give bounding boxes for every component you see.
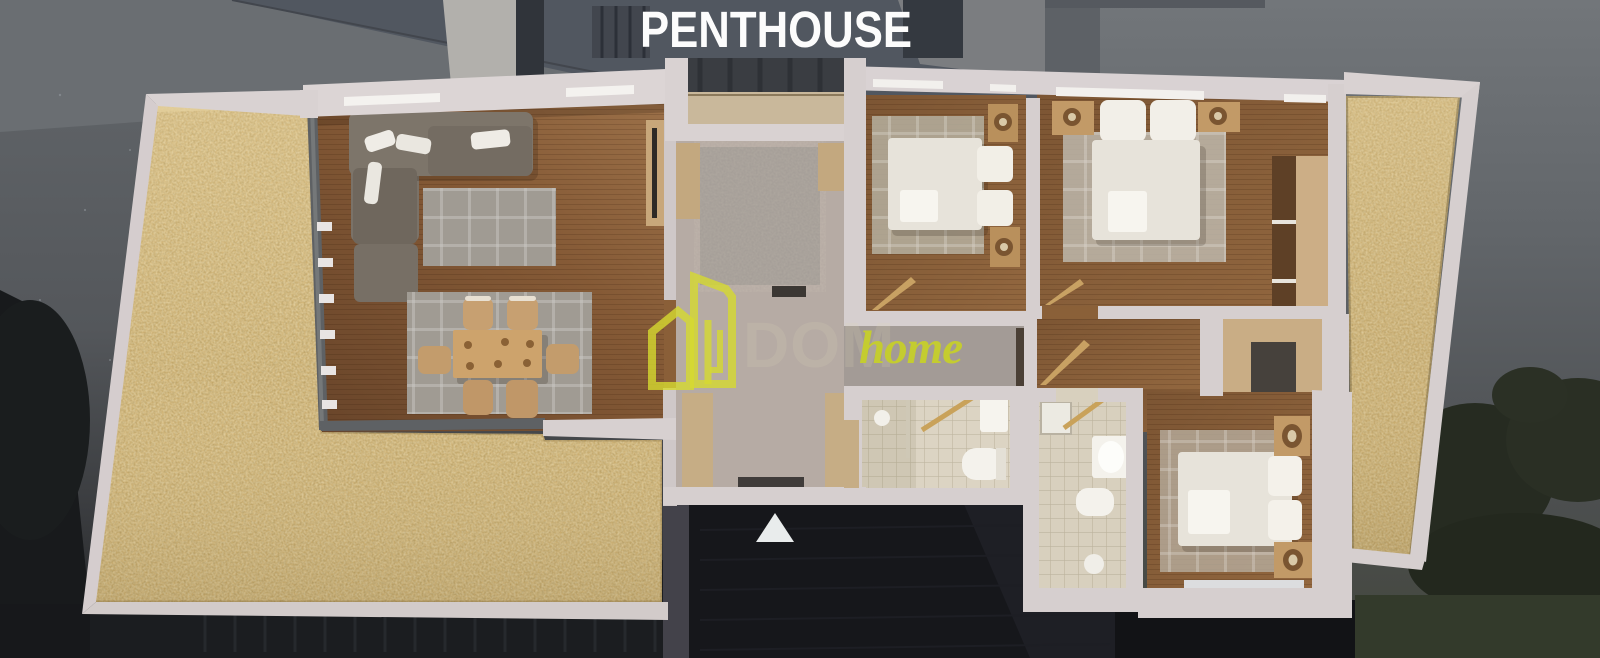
svg-text:PENTHOUSE: PENTHOUSE [640,1,912,58]
svg-text:home: home [859,322,962,374]
